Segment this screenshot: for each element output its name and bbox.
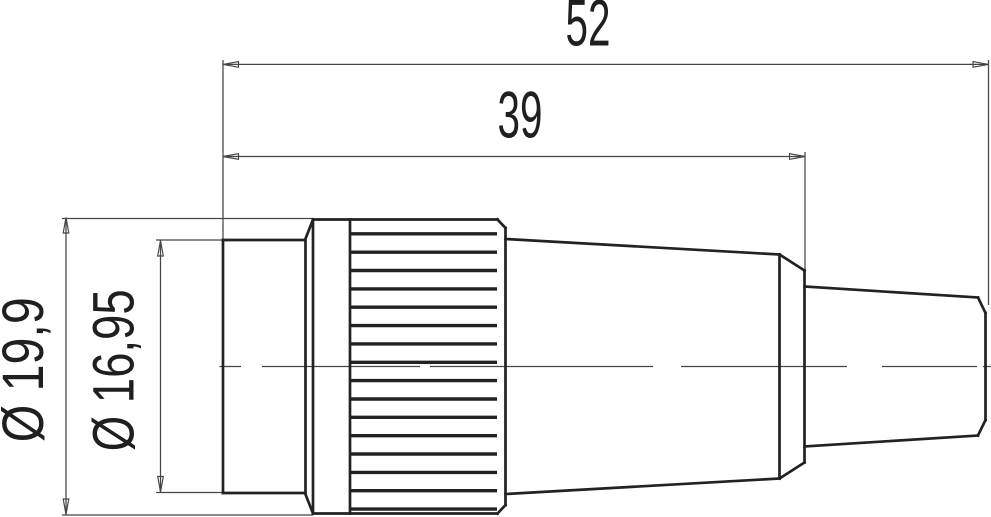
svg-text:52: 52 — [566, 0, 611, 60]
svg-text:39: 39 — [498, 78, 543, 152]
svg-text:Ø 19,9: Ø 19,9 — [0, 297, 56, 442]
svg-text:Ø 16,95: Ø 16,95 — [82, 289, 147, 451]
